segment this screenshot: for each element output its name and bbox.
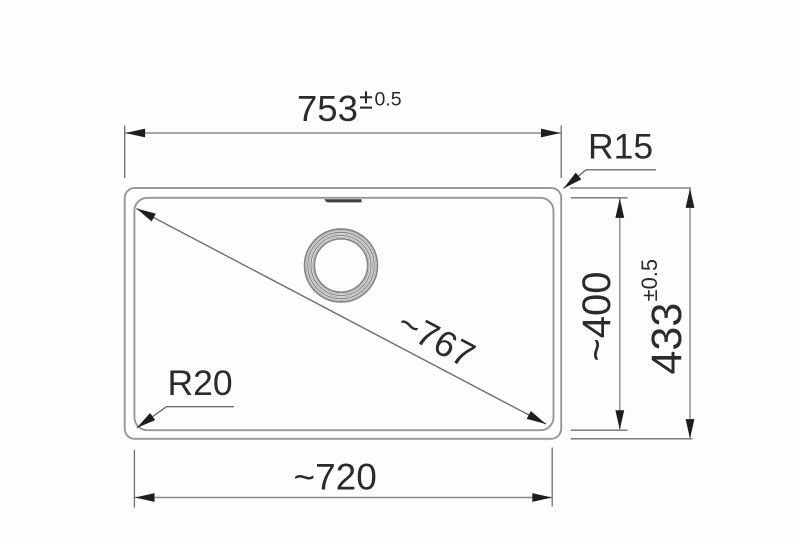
svg-text:R20: R20 (168, 363, 233, 403)
svg-text:0.5: 0.5 (375, 89, 402, 111)
svg-text:~400: ~400 (575, 271, 619, 361)
svg-text:753: 753 (297, 88, 358, 129)
svg-text:~720: ~720 (294, 456, 377, 497)
svg-text:433: 433 (643, 303, 691, 375)
svg-text:±0.5: ±0.5 (637, 259, 662, 302)
svg-text:R15: R15 (588, 127, 653, 167)
